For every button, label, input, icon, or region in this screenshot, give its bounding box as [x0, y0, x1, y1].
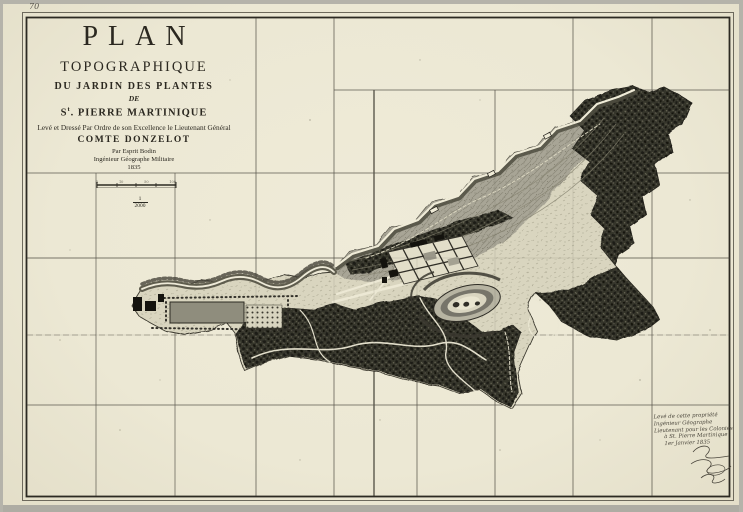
scale-denominator: 2000 — [133, 202, 148, 209]
map-subject: DU JARDIN DES PLANTES — [22, 82, 246, 93]
scale-tick: 50 — [144, 180, 148, 184]
map-commissioner: COMTE DONZELOT — [22, 136, 246, 146]
map-dedication: Levé et Dressé Par Ordre de son Excellen… — [22, 124, 246, 132]
map-author: Par Esprit Bodin — [22, 149, 246, 156]
scale-fraction: 1 2000 — [128, 196, 152, 209]
map-title: PLAN — [22, 22, 246, 51]
scale-bar: 5 10 50 100 — [96, 180, 178, 184]
field-rectangle — [170, 302, 244, 323]
map-de: DE — [22, 95, 246, 103]
title-block: PLAN TOPOGRAPHIQUE DU JARDIN DES PLANTES… — [22, 18, 246, 172]
map-author-title: Ingénieur Géographe Militaire — [22, 157, 246, 164]
corner-annotation: 70 — [29, 2, 39, 11]
scale-tick: 5 — [96, 180, 98, 184]
map-year: 1835 — [22, 165, 246, 172]
handwritten-note: Levé de cette propriété Ingénieur Géogra… — [653, 412, 738, 449]
orchard-dot-grid — [246, 305, 282, 328]
scale-tick-labels: 5 10 50 100 — [96, 180, 176, 184]
signature-flourish — [691, 446, 731, 483]
scale-tick: 10 — [119, 180, 123, 184]
map-place: St. PIERRE MARTINIQUE — [22, 107, 246, 119]
map-sheet: 70 PLAN TOPOGRAPHIQUE DU JARDIN DES PLAN… — [0, 0, 743, 512]
map-subtitle: TOPOGRAPHIQUE — [22, 60, 246, 75]
scale-tick: 100 — [169, 180, 176, 184]
